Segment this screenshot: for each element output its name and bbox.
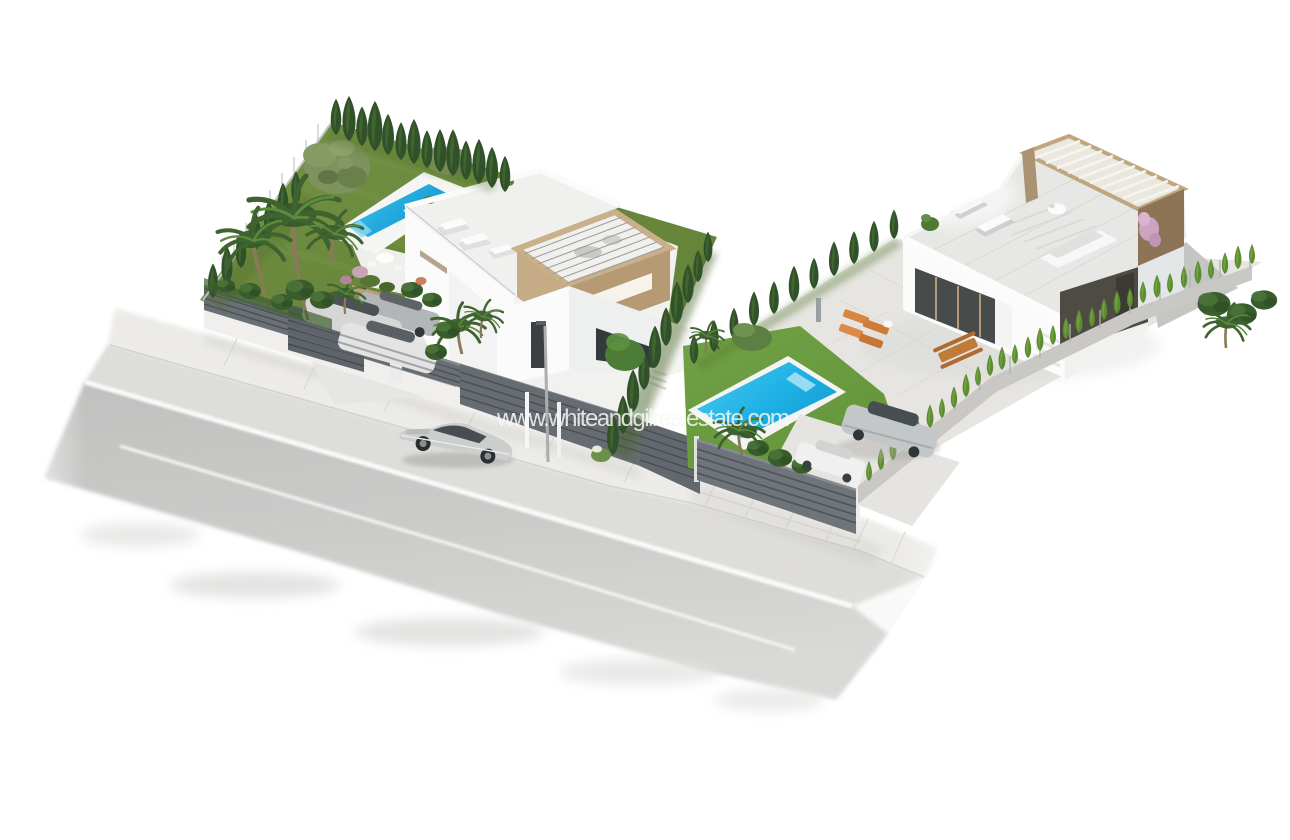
svg-text:www.whiteandgilrealestate.com: www.whiteandgilrealestate.com xyxy=(496,405,789,432)
